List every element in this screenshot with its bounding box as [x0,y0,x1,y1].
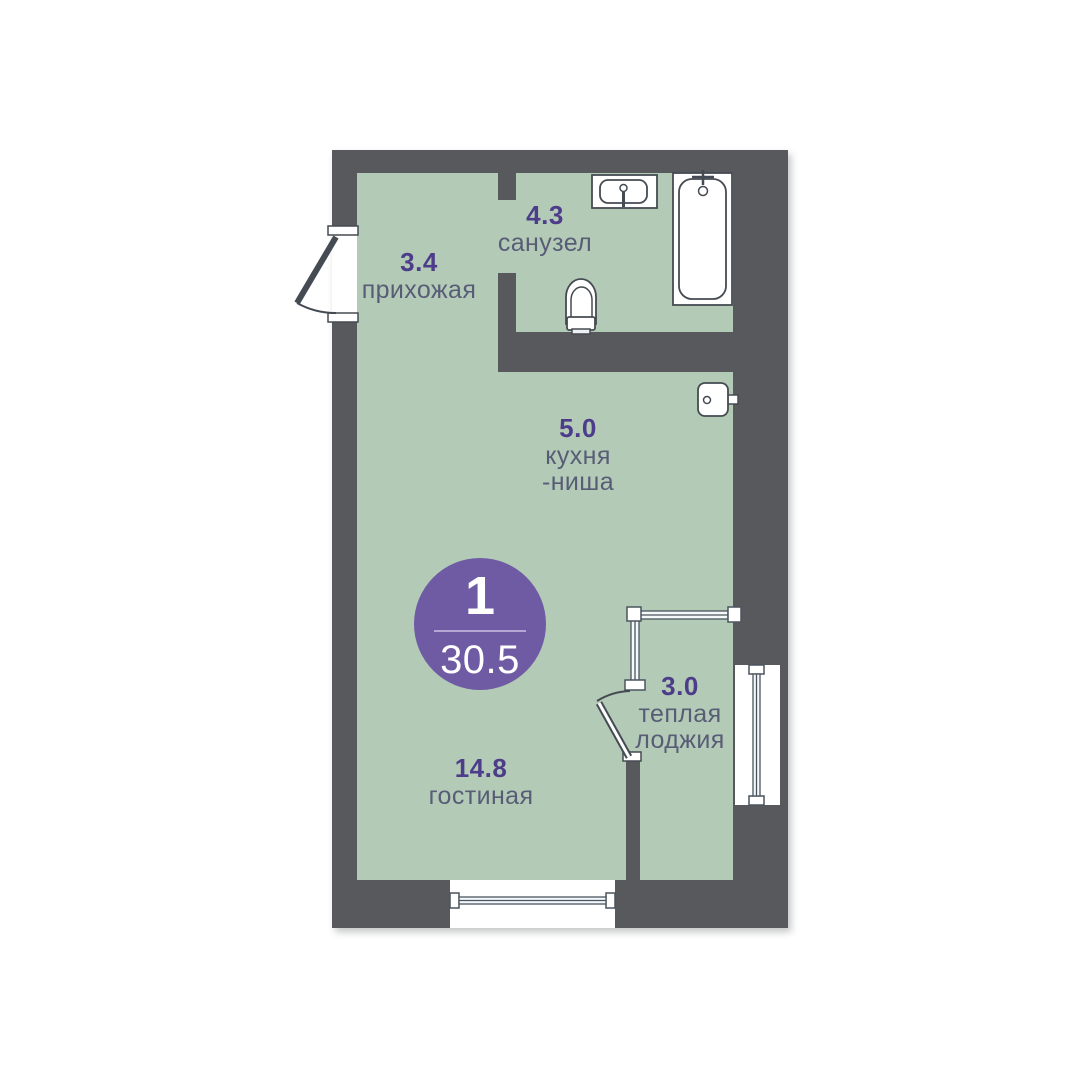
bathtub-icon [673,170,732,305]
sink-icon [592,175,657,208]
rooms-count: 1 [465,569,495,623]
room-label-hallway: 3.4 прихожая [362,247,477,303]
room-area-value: 4.3 [498,200,592,230]
room-area-value: 14.8 [429,753,534,783]
room-name: кухня [542,443,614,469]
room-name-line2: лоджия [635,727,724,753]
room-area-value: 3.4 [362,247,477,277]
room-label-loggia: 3.0 теплая лоджия [635,671,724,753]
room-name: прихожая [362,277,477,303]
toilet-icon [566,279,596,334]
room-label-living: 14.8 гостиная [429,753,534,809]
room-name: теплая [635,701,724,727]
room-area-value: 3.0 [635,671,724,701]
entrance-door-icon [297,226,358,322]
room-name: санузел [498,230,592,256]
kitchen-sink-icon [698,383,738,416]
window-bottom-icon [450,893,615,908]
plan-fixtures-layer [0,0,1080,1080]
room-area-value: 5.0 [542,413,614,443]
room-name: гостиная [429,783,534,809]
badge-divider [434,630,526,632]
room-label-bathroom: 4.3 санузел [498,200,592,256]
room-name-line2: -ниша [542,469,614,495]
floor-plan-canvas: 3.4 прихожая 4.3 санузел 5.0 кухня -ниша… [0,0,1080,1080]
unit-info-badge: 1 30.5 [414,558,546,690]
window-right-icon [749,665,764,805]
total-area: 30.5 [440,640,520,680]
room-label-kitchen: 5.0 кухня -ниша [542,413,614,495]
